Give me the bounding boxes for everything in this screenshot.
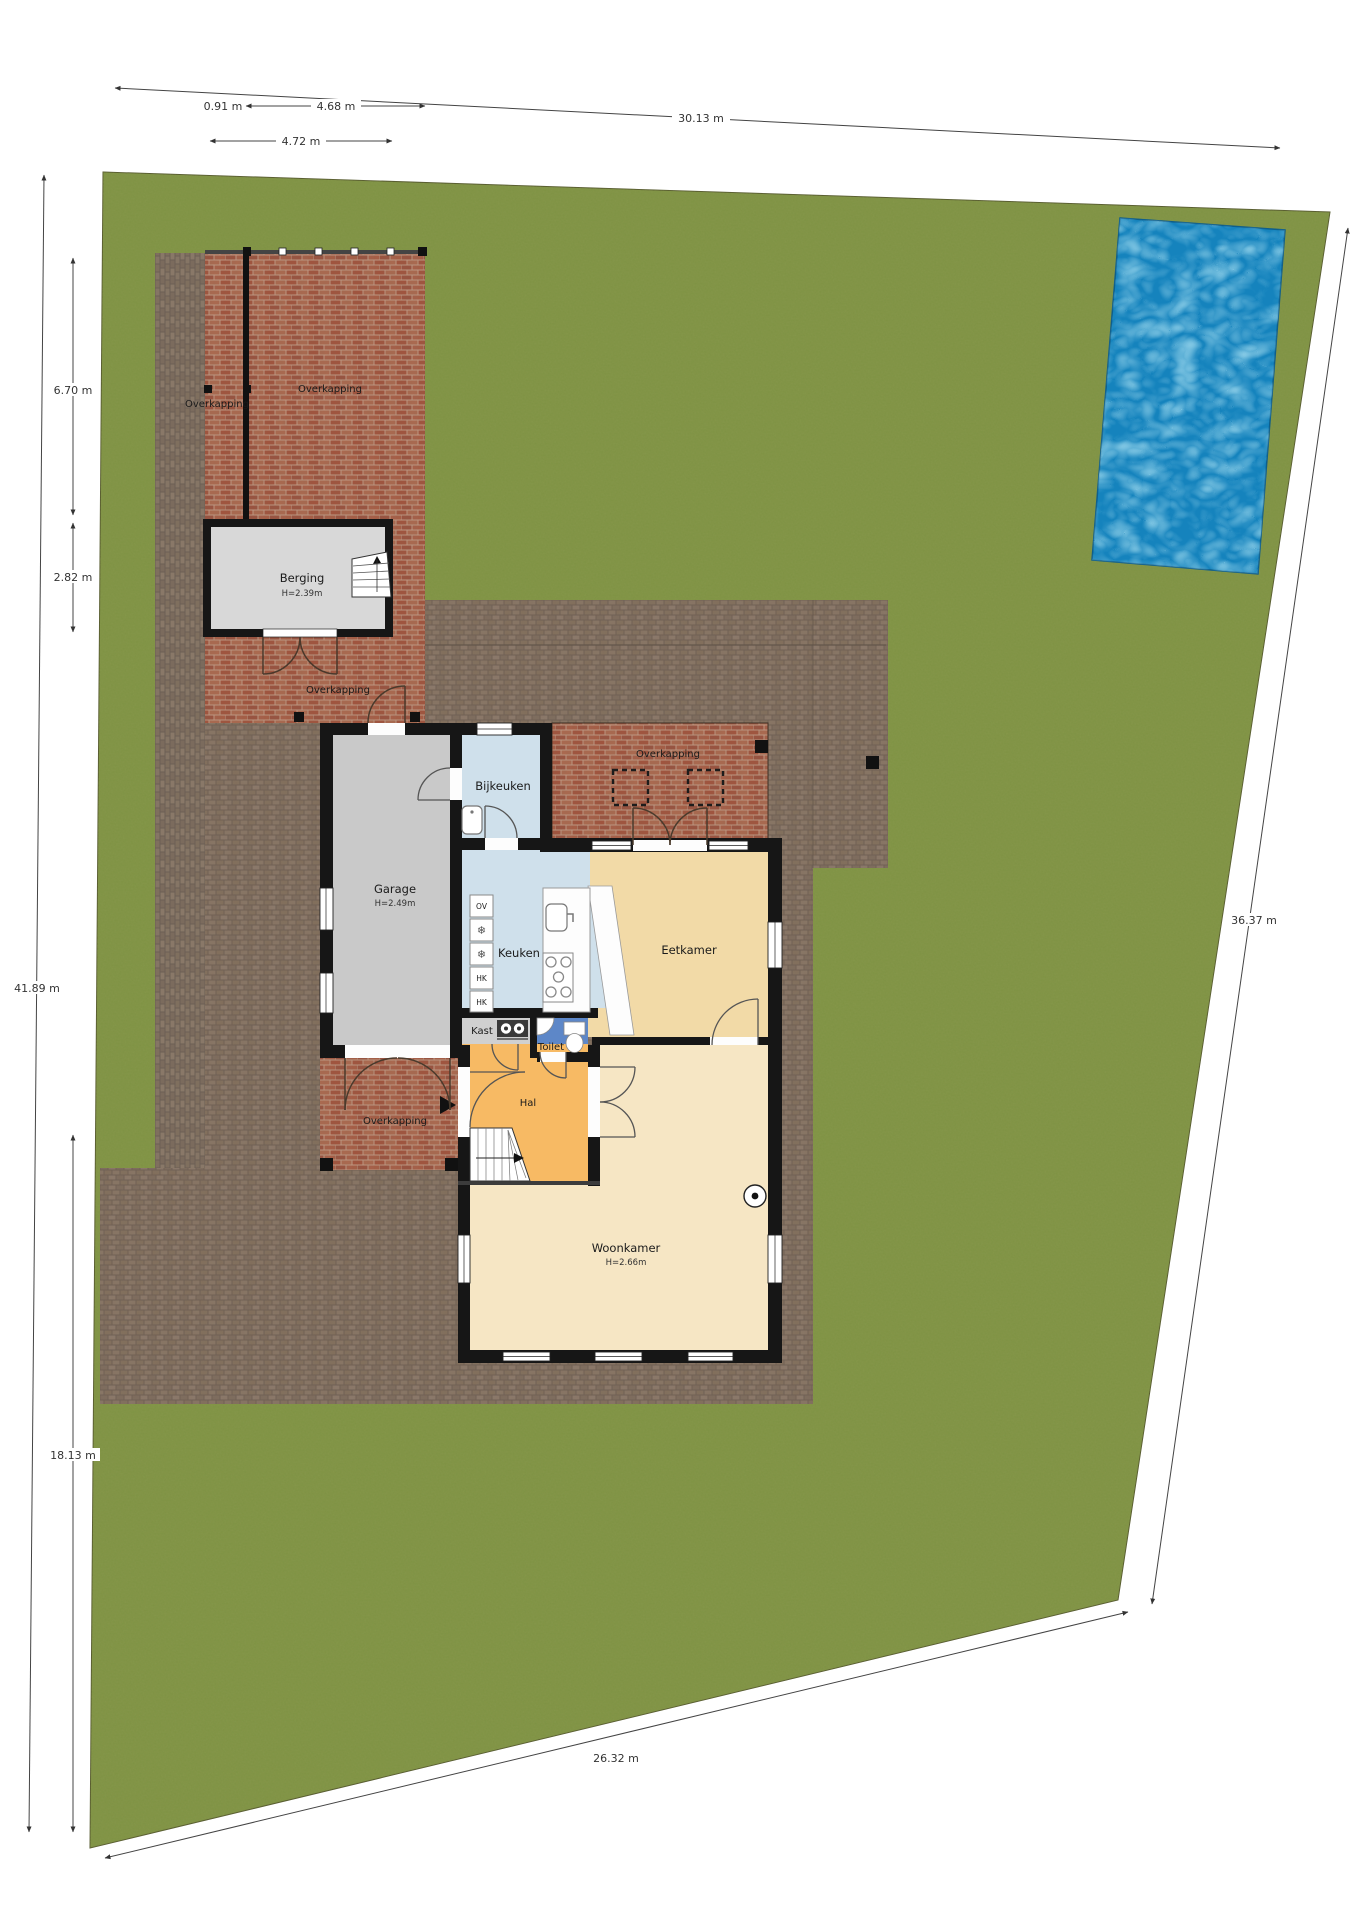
hal-label: Hal — [520, 1098, 536, 1109]
site-plan-page: Overkapping Overkapping Overkapping — [0, 0, 1358, 1920]
dim-top-total: 30.13 m — [678, 112, 724, 125]
driveway-strip — [155, 253, 205, 1168]
swimming-pool — [1092, 218, 1285, 574]
dim-top-shed: 4.68 m — [317, 100, 356, 113]
dim-top-shed-alt: 4.72 m — [282, 135, 321, 148]
dim-bottom-total: 26.32 m — [593, 1752, 639, 1765]
woonkamer-height: H=2.66m — [606, 1258, 647, 1268]
keuken-label: Keuken — [498, 946, 540, 960]
island-sink-icon — [546, 904, 567, 931]
dim-left-lower: 18.13 m — [50, 1449, 96, 1462]
oven-label: OV — [476, 902, 488, 911]
garage-height: H=2.49m — [375, 899, 416, 909]
site-plan: Overkapping Overkapping Overkapping — [0, 0, 1358, 1920]
toilet-label: Toilet — [537, 1042, 564, 1053]
bijkeuken-sink-icon — [462, 806, 482, 834]
shed-stairs-icon — [352, 552, 391, 597]
berging-label: Berging — [280, 571, 325, 585]
woonkamer-label: Woonkamer — [592, 1241, 661, 1255]
ceiling-point-icon — [744, 1185, 766, 1207]
dim-right-total: 36.37 m — [1231, 914, 1277, 927]
dim-left-berging: 2.82 m — [54, 571, 93, 584]
dim-left-overkapping: 6.70 m — [54, 384, 93, 397]
dim-left-total: 41.89 m — [14, 982, 60, 995]
terrace-post — [866, 756, 879, 769]
overkapping-entrance-label: Overkapping — [363, 1116, 427, 1127]
kast-label: Kast — [471, 1026, 493, 1037]
hk-lower-label: HK — [476, 998, 488, 1007]
eetkamer-label: Eetkamer — [661, 943, 717, 957]
dim-top-offset: 0.91 m — [204, 100, 243, 113]
kitchen-island — [543, 888, 590, 1012]
kitchen-appliance-column: OV ❄ ❄ HK HK — [470, 895, 493, 1012]
overkapping-strip-label: Overkapping — [185, 399, 249, 410]
bijkeuken-label: Bijkeuken — [475, 779, 531, 793]
overkapping-shed-south-label: Overkapping — [306, 685, 370, 696]
fridge-icon: ❄ — [477, 948, 486, 961]
overkapping-front-label: Overkapping — [298, 384, 362, 395]
overkapping-terrace: Overkapping — [552, 723, 768, 845]
garage-label: Garage — [374, 882, 416, 896]
berging-height: H=2.39m — [282, 589, 323, 599]
freezer-icon: ❄ — [477, 924, 486, 937]
overkapping-terrace-label: Overkapping — [636, 749, 700, 760]
overkapping-north: Overkapping Overkapping Overkapping — [185, 247, 427, 723]
hk-upper-label: HK — [476, 974, 488, 983]
kast-appliance-icon — [497, 1020, 528, 1039]
